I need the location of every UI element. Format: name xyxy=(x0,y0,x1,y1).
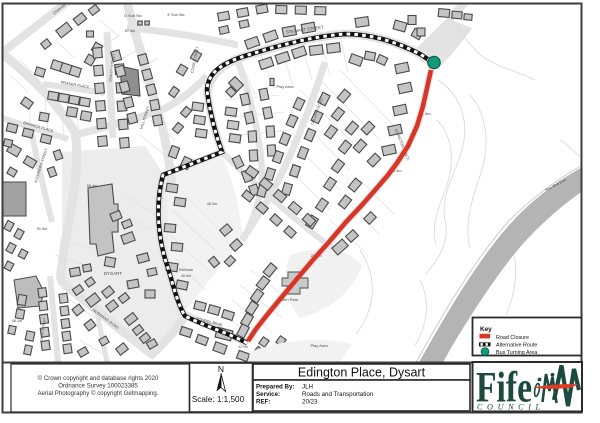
svg-text:REF:: REF: xyxy=(256,399,270,406)
svg-text:Roads and Transportation: Roads and Transportation xyxy=(302,391,374,398)
svg-text:© Crown copyright and database: © Crown copyright and database rights 20… xyxy=(38,375,159,382)
svg-text:D Sub Sta: D Sub Sta xyxy=(124,14,142,18)
svg-text:51.5m: 51.5m xyxy=(37,227,48,231)
svg-text:Play Area: Play Area xyxy=(310,343,328,348)
svg-text:20/23: 20/23 xyxy=(302,399,318,406)
svg-text:Ordnance Survey 100023385: Ordnance Survey 100023385 xyxy=(58,383,138,390)
svg-text:Play Area: Play Area xyxy=(276,84,294,89)
svg-text:Alternative Route: Alternative Route xyxy=(496,343,537,349)
svg-text:Aerial Photography © copyright: Aerial Photography © copyright Getmappin… xyxy=(37,390,158,397)
svg-text:N: N xyxy=(218,364,224,374)
svg-text:Scale: 1:1,500: Scale: 1:1,500 xyxy=(192,395,245,404)
svg-text:JLH: JLH xyxy=(302,384,313,391)
svg-text:45.2m: 45.2m xyxy=(207,202,218,206)
svg-text:Edington Place, Dysart: Edington Place, Dysart xyxy=(298,366,426,380)
svg-text:Elmbrae: Elmbrae xyxy=(179,268,193,272)
svg-text:E Sub Sta: E Sub Sta xyxy=(167,13,185,17)
svg-text:57.3m: 57.3m xyxy=(125,29,136,33)
svg-text:46.1m: 46.1m xyxy=(12,319,23,323)
svg-text:56.4m: 56.4m xyxy=(87,184,98,188)
svg-text:Prepared By:: Prepared By: xyxy=(256,384,295,391)
svg-text:COUNCIL: COUNCIL xyxy=(477,403,545,412)
svg-text:Service:: Service: xyxy=(256,391,280,398)
svg-text:DYSART: DYSART xyxy=(104,271,122,276)
svg-text:42.1m: 42.1m xyxy=(238,345,248,349)
svg-text:40.6m: 40.6m xyxy=(181,274,192,278)
svg-text:Road Closure: Road Closure xyxy=(496,335,529,341)
svg-text:Key: Key xyxy=(480,326,492,333)
svg-text:Bus Turning Area: Bus Turning Area xyxy=(496,350,537,356)
